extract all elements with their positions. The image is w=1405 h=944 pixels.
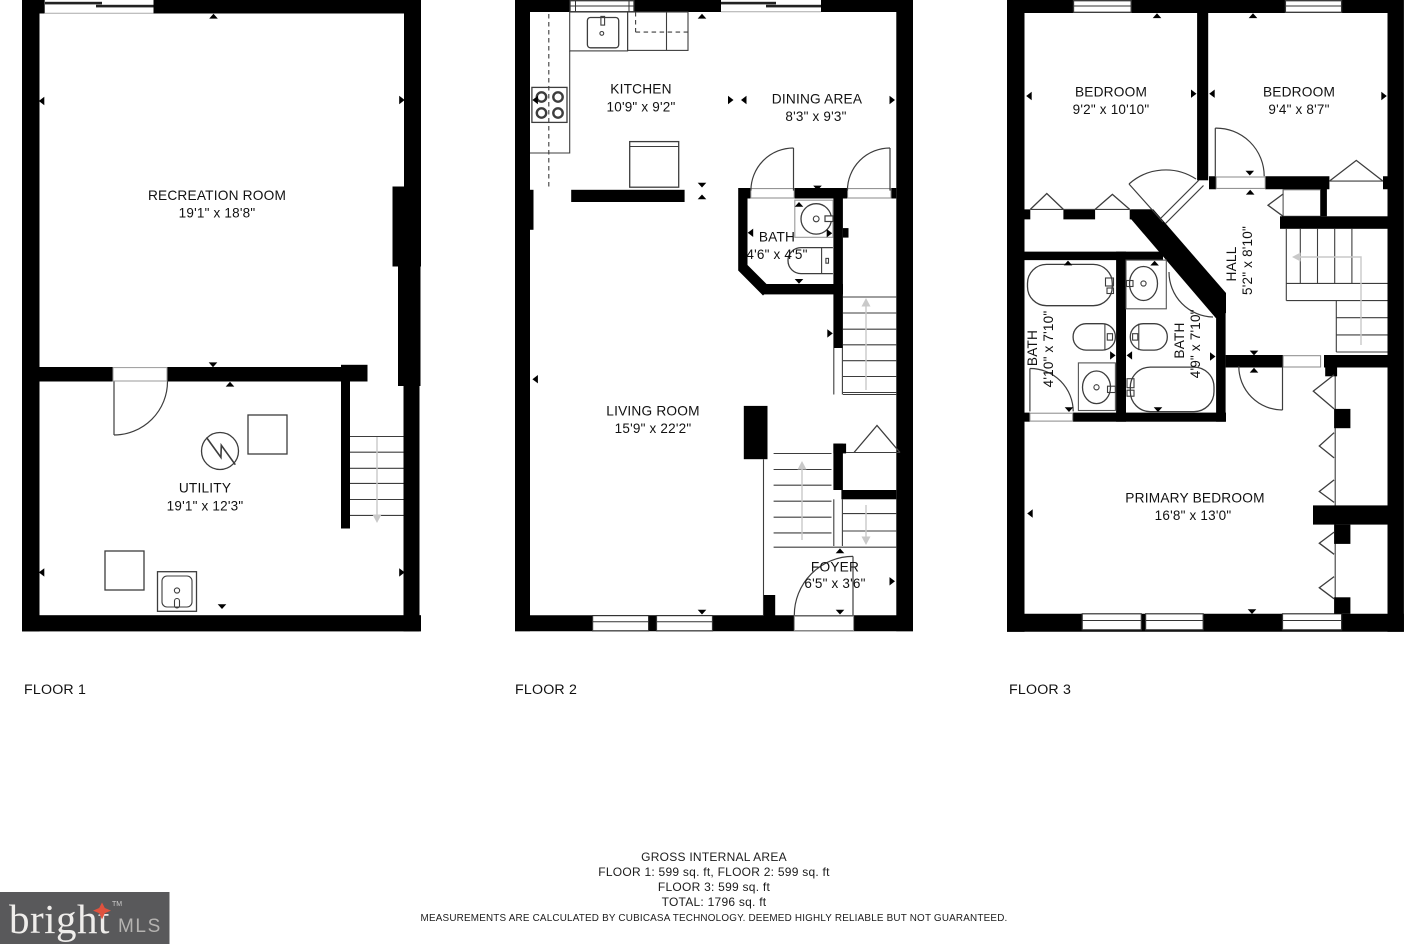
svg-text:FLOOR 2: FLOOR 2 xyxy=(515,682,577,698)
svg-text:bright: bright xyxy=(9,896,110,942)
svg-text:UTILITY: UTILITY xyxy=(179,481,231,496)
svg-text:8'3" x 9'3": 8'3" x 9'3" xyxy=(785,109,846,124)
svg-text:TOTAL: 1796 sq. ft: TOTAL: 1796 sq. ft xyxy=(662,895,767,909)
svg-text:KITCHEN: KITCHEN xyxy=(610,82,671,97)
svg-text:9'2" x 10'10": 9'2" x 10'10" xyxy=(1073,102,1150,117)
svg-text:BEDROOM: BEDROOM xyxy=(1263,85,1335,100)
svg-text:5'2" x 8'10": 5'2" x 8'10" xyxy=(1240,226,1255,295)
svg-text:BEDROOM: BEDROOM xyxy=(1075,85,1147,100)
svg-text:4'10" x 7'10": 4'10" x 7'10" xyxy=(1041,311,1056,388)
svg-text:MEASUREMENTS ARE CALCULATED BY: MEASUREMENTS ARE CALCULATED BY CUBICASA … xyxy=(421,913,1008,924)
svg-text:TM: TM xyxy=(112,901,122,908)
svg-text:16'8" x 13'0": 16'8" x 13'0" xyxy=(1155,508,1232,523)
svg-text:PRIMARY BEDROOM: PRIMARY BEDROOM xyxy=(1125,491,1264,506)
svg-text:BATH: BATH xyxy=(759,230,795,245)
svg-text:4'6" x 4'5": 4'6" x 4'5" xyxy=(746,247,807,262)
svg-text:6'5" x 3'6": 6'5" x 3'6" xyxy=(804,576,865,591)
svg-text:10'9" x 9'2": 10'9" x 9'2" xyxy=(607,100,676,115)
svg-text:19'1" x 18'8": 19'1" x 18'8" xyxy=(179,206,256,221)
svg-text:HALL: HALL xyxy=(1224,246,1239,281)
svg-text:15'9" x 22'2": 15'9" x 22'2" xyxy=(615,421,692,436)
svg-text:BATH: BATH xyxy=(1172,322,1187,358)
svg-text:FLOOR 3: FLOOR 3 xyxy=(1009,682,1071,698)
svg-text:9'4" x 8'7": 9'4" x 8'7" xyxy=(1268,102,1329,117)
svg-text:FLOOR 1: 599 sq. ft, FLOOR 2:: FLOOR 1: 599 sq. ft, FLOOR 2: 599 sq. ft xyxy=(598,865,830,879)
svg-text:BATH: BATH xyxy=(1025,330,1040,366)
svg-text:GROSS INTERNAL AREA: GROSS INTERNAL AREA xyxy=(641,850,787,864)
svg-text:FOYER: FOYER xyxy=(811,560,859,575)
svg-text:LIVING ROOM: LIVING ROOM xyxy=(606,404,699,419)
svg-text:RECREATION ROOM: RECREATION ROOM xyxy=(148,188,286,203)
svg-text:4'9" x 7'10": 4'9" x 7'10" xyxy=(1188,309,1203,378)
svg-text:MLS: MLS xyxy=(118,916,162,937)
svg-text:19'1" x 12'3": 19'1" x 12'3" xyxy=(167,499,244,514)
svg-text:FLOOR 3: 599 sq. ft: FLOOR 3: 599 sq. ft xyxy=(658,880,771,894)
svg-text:FLOOR 1: FLOOR 1 xyxy=(24,682,86,698)
svg-text:DINING AREA: DINING AREA xyxy=(772,92,863,107)
